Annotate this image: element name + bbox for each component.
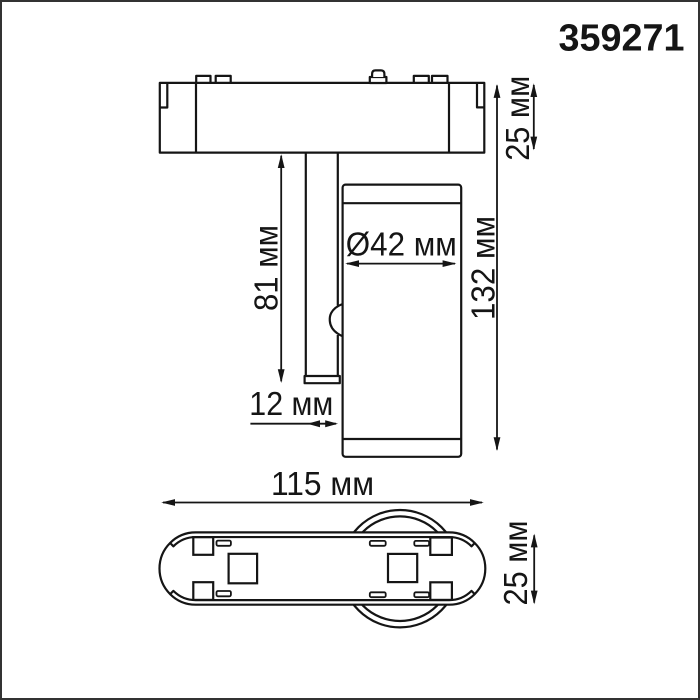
svg-text:132 мм: 132 мм xyxy=(465,216,502,320)
svg-text:12 мм: 12 мм xyxy=(249,385,333,422)
svg-text:25 мм: 25 мм xyxy=(497,521,534,606)
svg-text:Ø42 мм: Ø42 мм xyxy=(346,226,457,263)
svg-text:25 мм: 25 мм xyxy=(499,76,536,161)
svg-text:115 мм: 115 мм xyxy=(271,465,374,502)
svg-text:359271: 359271 xyxy=(559,17,685,59)
svg-text:81 мм: 81 мм xyxy=(247,225,284,311)
